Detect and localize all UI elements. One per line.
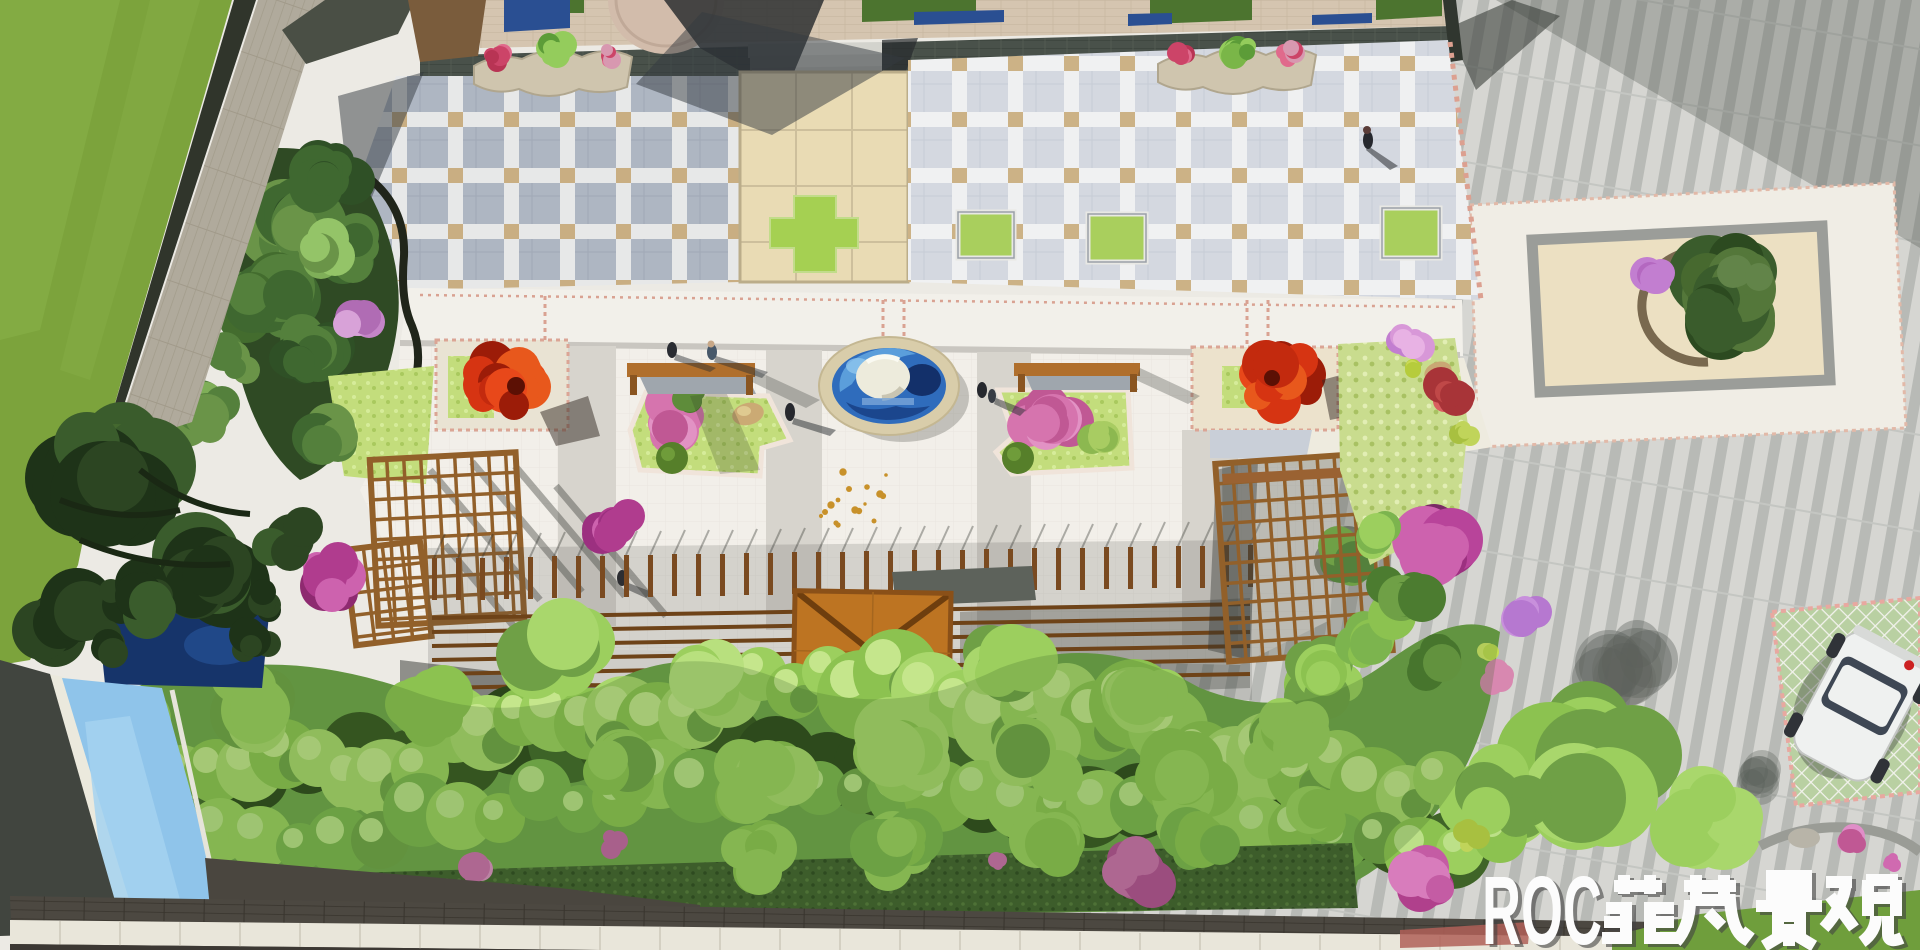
svg-text:ROC: ROC bbox=[1482, 856, 1602, 950]
